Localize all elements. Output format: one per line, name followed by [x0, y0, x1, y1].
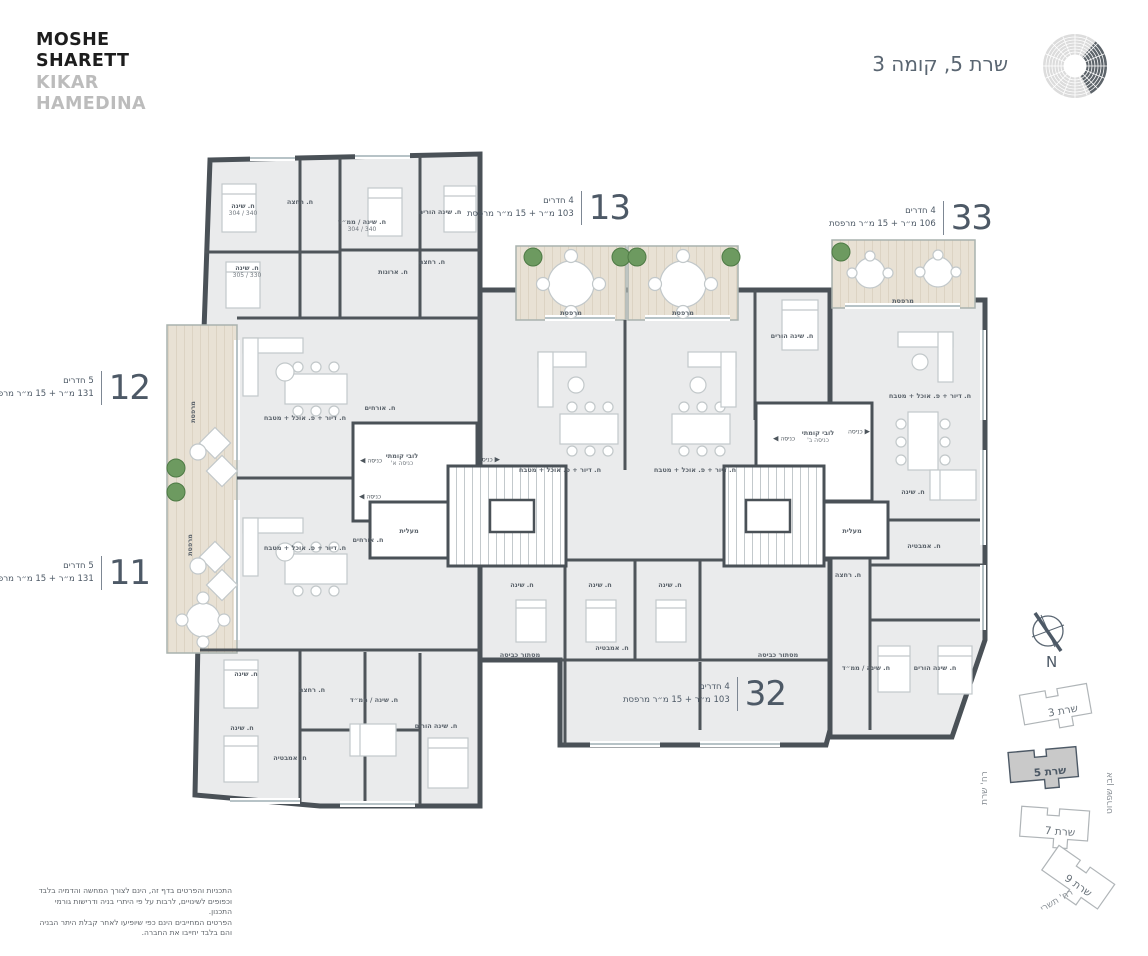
room-label: ח. אמבטיה	[273, 754, 306, 762]
unit-callout-32: 4 חדרים 103 מ״ר + 15 מ״ר מרפסת 32	[623, 674, 786, 714]
room-label: ח. דיור + פ. אוכל + מטבח	[654, 466, 736, 474]
disclaimer-line: התכניות והפרטים בדף זה, הינם לצורך המחשה…	[36, 886, 232, 897]
room-label: ח. רחצה	[419, 258, 445, 266]
unit-callout-13: 4 חדרים 103 מ״ר + 15 מ״ר מרפסת 13	[467, 188, 630, 228]
unit-area: 103 מ״ר + 15 מ״ר מרפסת	[467, 208, 574, 221]
room-label: מעלית	[399, 527, 418, 535]
floor-plan-page: MOSHE SHARETT KIKAR HAMEDINA שרת 5, קומה…	[0, 0, 1148, 956]
room-label: ח. שינה הורים	[415, 722, 458, 730]
room-label: ח. ארונות	[378, 268, 408, 276]
arrow-left-icon: ◀	[359, 494, 364, 501]
unit-callout-11: 5 חדרים 131 מ״ר + 15 מ״ר מרפסת 11	[0, 553, 150, 593]
room-label: ח. שינה / ממ״ד	[842, 664, 890, 672]
room-label: לובי קומתיכניסה א'	[386, 452, 418, 468]
room-label: ח. אורחים	[365, 404, 396, 412]
unit-rooms: 5 חדרים	[0, 560, 94, 573]
room-label: ח. שינה	[658, 581, 681, 589]
room-label: ח. שינה	[588, 581, 611, 589]
room-label: ח. שינה340 / 304	[229, 202, 258, 218]
entrance-marker: כניסה▶	[478, 457, 500, 464]
arrow-left-icon: ◀	[360, 458, 365, 465]
street-label-sharett: רח' שרת	[980, 771, 990, 805]
room-label: מרפסת	[560, 309, 582, 317]
room-label: מעלית	[842, 527, 861, 535]
room-label: מסתור כביסה	[758, 651, 798, 659]
unit-area: 103 מ״ר + 15 מ״ר מרפסת	[623, 694, 730, 707]
entrance-marker: כניסה▶	[848, 429, 870, 436]
room-label: ח. אמבטיה	[907, 542, 940, 550]
room-label: לובי קומתיכניסה ב'	[802, 429, 834, 445]
room-label: מסתור כביסה	[500, 651, 540, 659]
room-label: ח. רחצה	[287, 198, 313, 206]
room-label: ח. דיור + פ. אוכל + מטבח	[264, 414, 346, 422]
room-label: ח. שינה / ממ״ד340 / 304	[338, 218, 386, 234]
north-label: N	[1046, 653, 1057, 671]
unit-number: 13	[589, 188, 630, 228]
unit-callout-33: 4 חדרים 106 מ״ר + 15 מ״ר מרפסת 33	[829, 198, 992, 238]
room-label: ח. שינה	[901, 488, 924, 496]
disclaimer-line: והם בלבד יחייבו את החברה.	[36, 928, 232, 939]
room-label: מרפסת	[672, 309, 694, 317]
room-label: ח. אורחים	[353, 536, 384, 544]
room-label: ח. שינה הורים	[419, 208, 462, 216]
room-label: ח. שינה	[234, 670, 257, 678]
disclaimer: התכניות והפרטים בדף זה, הינם לצורך המחשה…	[36, 886, 232, 939]
site-map-building-sharett-7: שרת 7	[1044, 825, 1075, 839]
street-label-ibn-shaprut: אבן שפרוט	[1105, 772, 1115, 814]
disclaimer-line: הפרטים המחייבים הינם כפי שיופיעו לאחר קב…	[36, 918, 232, 929]
unit-number: 33	[951, 198, 992, 238]
arrow-left-icon: ◀	[773, 436, 778, 443]
room-label: מרפסת	[186, 534, 194, 556]
callout-divider	[943, 201, 944, 235]
entrance-marker: ◀כניסה	[773, 436, 795, 443]
unit-number: 11	[109, 553, 150, 593]
unit-rooms: 4 חדרים	[467, 195, 574, 208]
unit-number: 12	[109, 368, 150, 408]
callout-divider	[737, 677, 738, 711]
callout-divider	[101, 556, 102, 590]
room-label: ח. דיור + פ. אוכל + מטבח	[519, 466, 601, 474]
room-label: ח. שינה	[510, 581, 533, 589]
room-label: מרפסת	[189, 401, 197, 423]
room-label: ח. שינה הורים	[914, 664, 957, 672]
entrance-marker: ◀כניסה	[359, 494, 381, 501]
unit-area: 131 מ״ר + 15 מ״ר מרפסת	[0, 388, 94, 401]
room-label: ח. שינה הורים	[771, 332, 814, 340]
unit-number: 32	[745, 674, 786, 714]
room-label: ח. אמבטיה	[595, 644, 628, 652]
disclaimer-line: וכפופים לשינויים, לרבות על פי היתרי בניה…	[36, 897, 232, 918]
room-label: ח. רחצה	[299, 686, 325, 694]
unit-rooms: 5 חדרים	[0, 375, 94, 388]
unit-area: 106 מ״ר + 15 מ״ר מרפסת	[829, 218, 936, 231]
callout-divider	[101, 371, 102, 405]
room-label: ח. שינה / ממ״ד	[350, 696, 398, 704]
room-label: ח. רחצה	[835, 571, 861, 579]
unit-callout-12: 5 חדרים 131 מ״ר + 15 מ״ר מרפסת 12	[0, 368, 150, 408]
arrow-right-icon: ▶	[495, 457, 500, 464]
callout-divider	[581, 191, 582, 225]
room-label: ח. שינה330 / 305	[233, 264, 262, 280]
unit-area: 131 מ״ר + 15 מ״ר מרפסת	[0, 573, 94, 586]
room-label: ח. שינה	[230, 724, 253, 732]
arrow-right-icon: ▶	[865, 429, 870, 436]
room-label: מרפסת	[892, 297, 914, 305]
entrance-marker: ◀כניסה	[360, 458, 382, 465]
room-label: ח. דיור + פ. אוכל + מטבח	[889, 392, 971, 400]
unit-rooms: 4 חדרים	[829, 205, 936, 218]
floor-plan-drawing	[0, 0, 1148, 956]
room-label: ח. דיור + פ. אוכל + מטבח	[264, 544, 346, 552]
unit-rooms: 4 חדרים	[623, 681, 730, 694]
